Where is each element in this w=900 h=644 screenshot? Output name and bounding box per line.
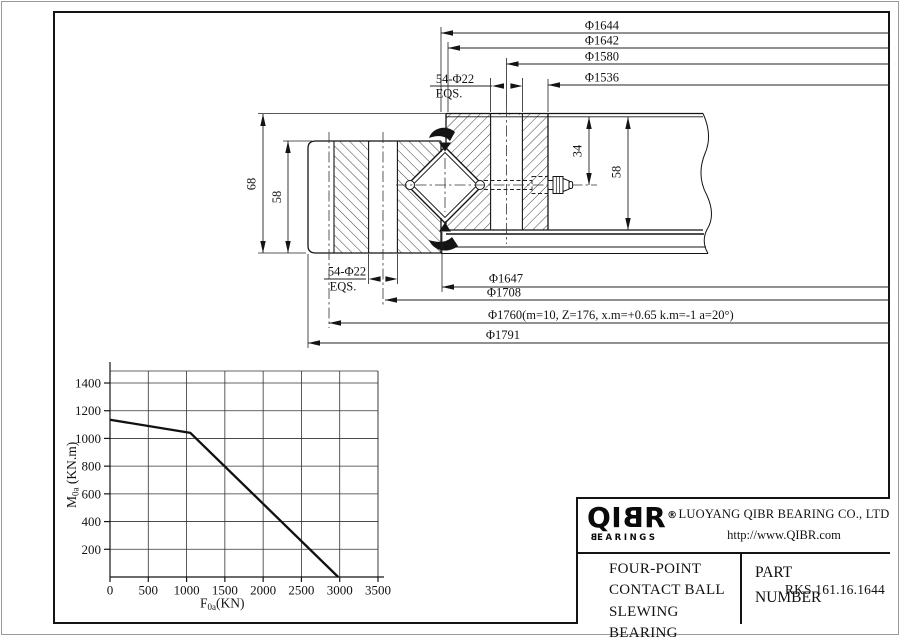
arrowhead-icon	[260, 114, 265, 126]
chart-y-tick-label: 200	[82, 542, 102, 557]
dim-34: 34	[571, 144, 585, 157]
arrowhead-icon	[285, 241, 290, 253]
arrowhead-icon	[369, 276, 381, 281]
chart-y-tick-label: 800	[82, 459, 102, 474]
chart-y-axis-title: M0a (KN.m)	[64, 442, 81, 508]
arrowhead-icon	[586, 117, 591, 129]
arrowhead-icon	[308, 340, 320, 345]
arrowhead-icon	[385, 297, 397, 302]
arrowhead-icon	[260, 241, 265, 253]
seal-top	[429, 128, 455, 141]
break-line	[701, 114, 712, 254]
chart-x-axis-title: F0a(KN)	[200, 596, 245, 613]
chart-x-tick-label: 3500	[365, 583, 391, 598]
dim-1647: Φ1647	[489, 272, 523, 286]
dim-height-68: 68	[245, 178, 259, 191]
bolt-label-top-eqs: EQS.	[436, 87, 463, 101]
dim-1642: Φ1642	[585, 34, 619, 48]
company-name: LUOYANG QIBR BEARING CO., LTD	[678, 507, 890, 522]
product-line-1: FOUR-POINT	[609, 559, 740, 580]
product-line-2: CONTACT BALL	[609, 580, 740, 601]
arrowhead-icon	[548, 82, 560, 87]
arrowhead-icon	[492, 83, 504, 88]
arrowhead-icon	[625, 117, 630, 129]
static-load-chart: 2004006008001000120014000500100015002000…	[64, 362, 391, 612]
load-limit-curve	[110, 420, 338, 577]
company-website[interactable]: http://www.QIBR.com	[678, 528, 890, 543]
arrowhead-icon	[442, 284, 454, 289]
chart-x-tick-label: 0	[107, 583, 114, 598]
arrowhead-icon	[441, 30, 453, 35]
registered-mark-icon: ®	[667, 510, 678, 521]
title-block-header: QIBR® BEARINGS LUOYANG QIBR BEARING CO.,…	[578, 499, 890, 554]
chart-x-tick-label: 2500	[288, 583, 314, 598]
arrowhead-icon	[510, 83, 522, 88]
bolt-label-bottom-eqs: EQS.	[330, 280, 357, 294]
dim-bore-1536: Φ1536	[585, 71, 619, 85]
arrowhead-icon	[329, 320, 341, 325]
chart-x-tick-label: 2000	[250, 583, 276, 598]
dim-height-58-left: 58	[270, 191, 284, 204]
title-block-body: FOUR-POINT CONTACT BALL SLEWING BEARING …	[578, 554, 890, 624]
product-description: FOUR-POINT CONTACT BALL SLEWING BEARING	[578, 554, 742, 624]
arrowhead-icon	[586, 173, 591, 185]
dim-tip-1791: Φ1791	[486, 328, 520, 342]
part-number-cell: PART NUMBER RKS.161.16.1644	[742, 554, 890, 624]
arrowhead-icon	[625, 218, 630, 230]
arrowhead-icon	[385, 276, 397, 281]
bolt-label-top: 54-Φ22	[436, 72, 474, 86]
company-logo: QIBR® BEARINGS	[578, 499, 678, 552]
chart-y-tick-label: 1200	[75, 403, 101, 418]
chart-x-tick-label: 500	[139, 583, 159, 598]
arrowhead-icon	[448, 45, 460, 50]
catalog-drawing-page: { "drawing": { "dims_top": ["Φ1644", "Φ1…	[0, 0, 900, 636]
chart-y-tick-label: 600	[82, 486, 102, 501]
logo-bearings-text: BEARINGS	[588, 533, 678, 543]
part-number-value: RKS.161.16.1644	[785, 582, 885, 598]
qibr-logo: QIBR®	[587, 504, 678, 532]
title-block: QIBR® BEARINGS LUOYANG QIBR BEARING CO.,…	[576, 497, 890, 624]
product-line-3: SLEWING BEARING	[609, 602, 740, 644]
arrowhead-icon	[285, 141, 290, 153]
dim-1708: Φ1708	[487, 286, 521, 300]
chart-x-tick-label: 3000	[327, 583, 353, 598]
dim-od-1644: Φ1644	[585, 19, 620, 33]
chart-y-tick-label: 1400	[75, 376, 101, 391]
company-info: LUOYANG QIBR BEARING CO., LTD http://www…	[678, 499, 890, 552]
arrowhead-icon	[507, 61, 519, 66]
chart-y-tick-label: 400	[82, 514, 102, 529]
bolt-label-bottom: 54-Φ22	[328, 265, 366, 279]
dim-gear-1760: Φ1760(m=10, Z=176, x.m=+0.65 k.m=-1 a=20…	[488, 308, 734, 322]
chart-x-tick-label: 1000	[174, 583, 200, 598]
dim-bolt-circle-1580: Φ1580	[585, 50, 619, 64]
dim-height-58-right: 58	[610, 166, 624, 179]
